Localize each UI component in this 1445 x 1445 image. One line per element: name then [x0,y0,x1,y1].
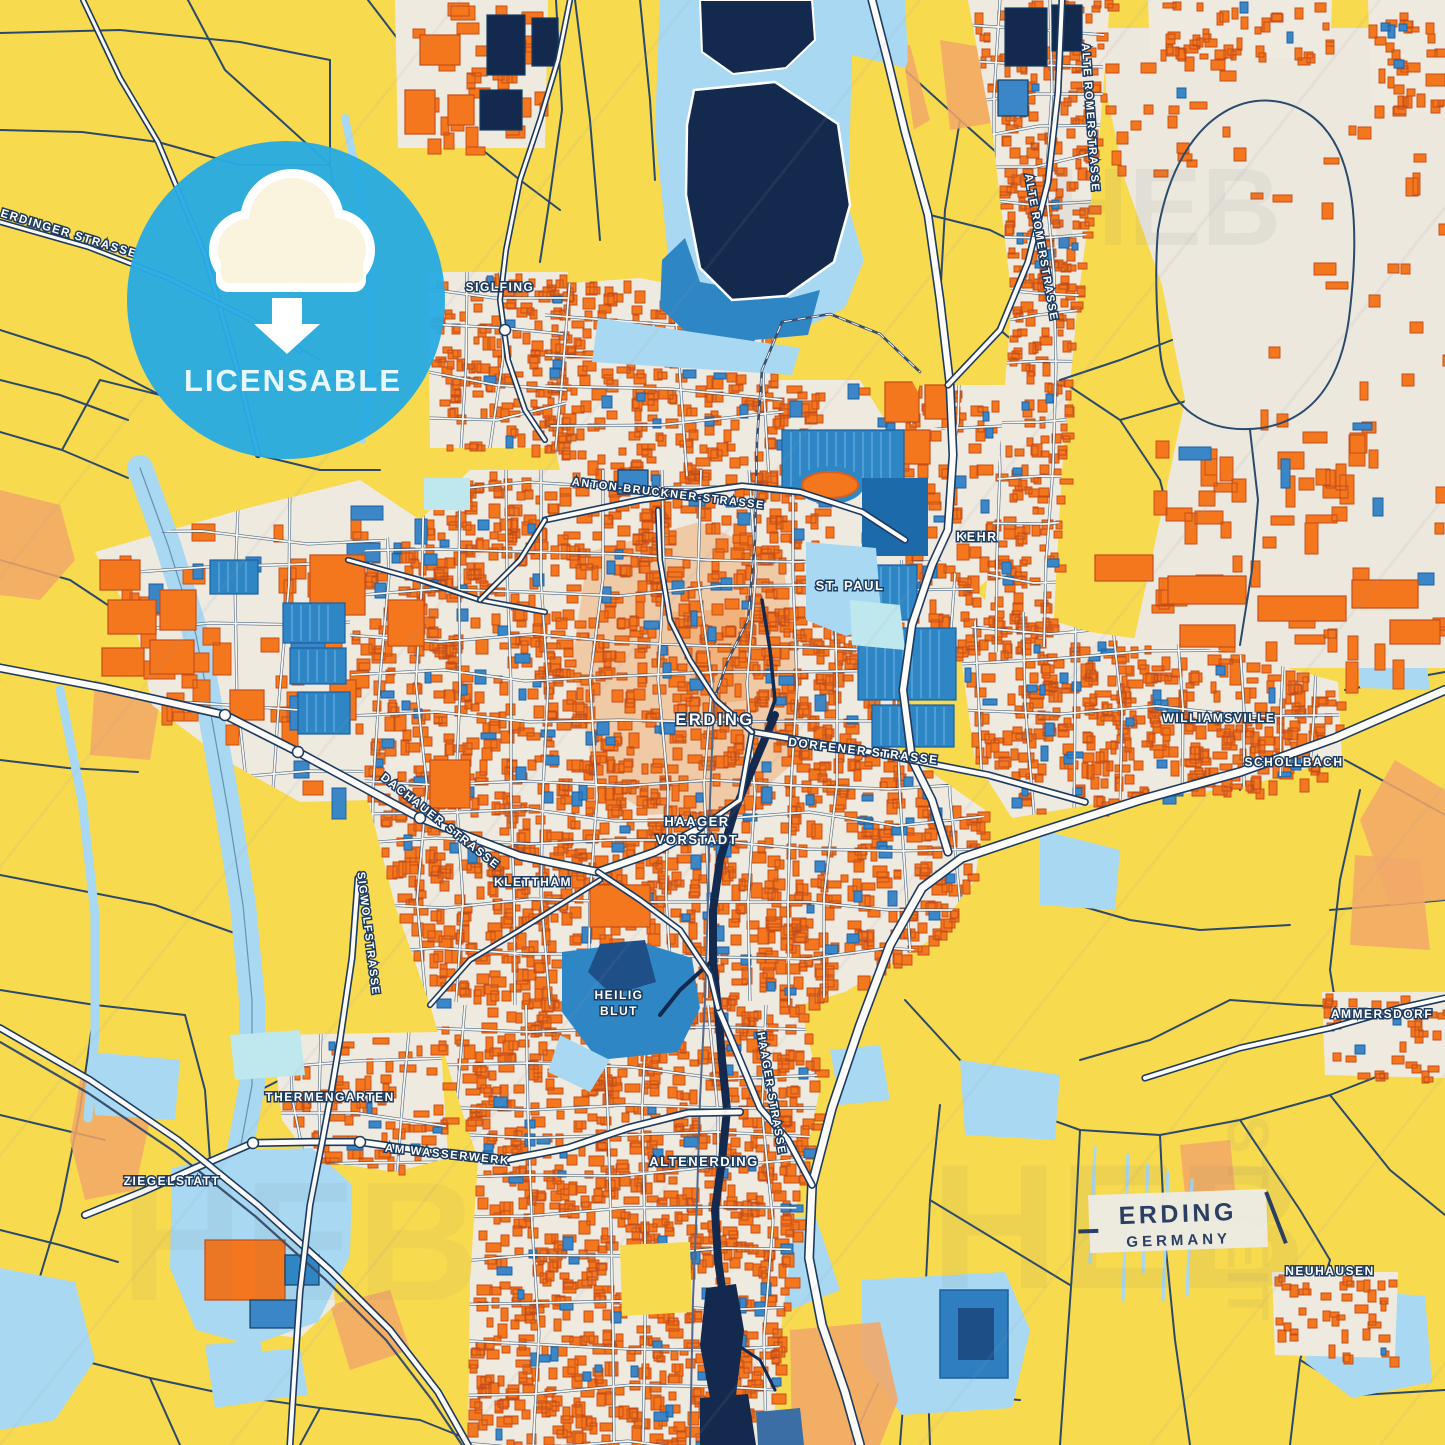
svg-text:HEILIG: HEILIG [594,988,643,1002]
svg-text:THERMENGARTEN: THERMENGARTEN [265,1090,395,1104]
svg-text:ST. PAUL: ST. PAUL [816,578,885,593]
svg-text:ERDING: ERDING [675,711,754,729]
svg-text:AMMERSDORF: AMMERSDORF [1331,1007,1433,1021]
svg-text:BLUT: BLUT [600,1004,638,1018]
svg-text:KLETTHAM: KLETTHAM [494,875,572,889]
svg-text:HEB: HEB [1049,146,1281,269]
svg-text:KEHR: KEHR [956,530,997,544]
svg-text:ZIEGELSTATT: ZIEGELSTATT [124,1174,221,1188]
svg-text:LICENSABLE: LICENSABLE [184,363,402,398]
svg-text:ERDING: ERDING [1118,1198,1237,1230]
svg-text:SIGLFING: SIGLFING [466,280,535,294]
svg-text:NEUHAUSEN: NEUHAUSEN [1285,1264,1375,1278]
svg-text:VORSTADT: VORSTADT [656,832,739,847]
svg-text:SCHOLLBACH: SCHOLLBACH [1245,755,1344,769]
svg-text:WILLIAMSVILLE: WILLIAMSVILLE [1163,711,1276,725]
svg-text:HAAGER: HAAGER [664,814,729,829]
svg-text:ALTENERDING: ALTENERDING [649,1154,758,1169]
